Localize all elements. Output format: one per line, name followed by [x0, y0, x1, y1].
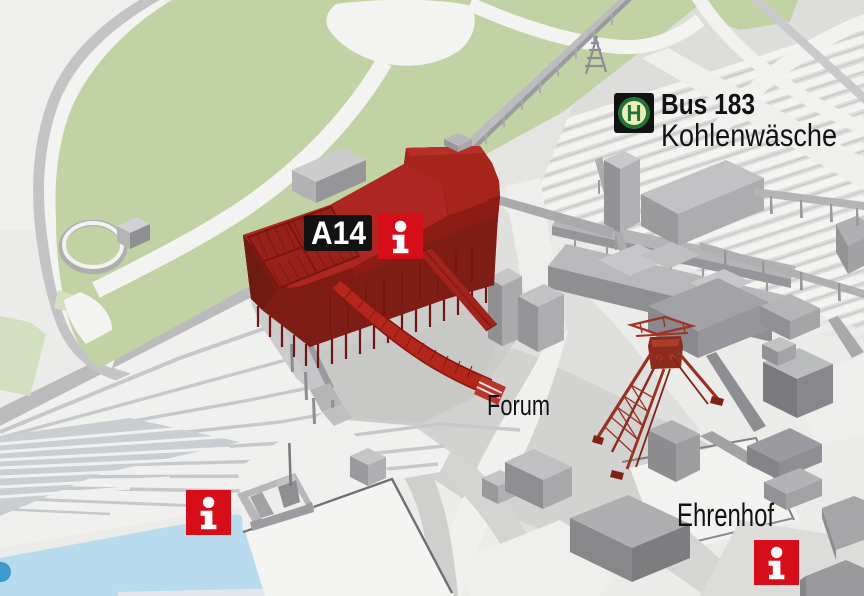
svg-text:H: H	[627, 100, 642, 126]
svg-text:Ehrenhof: Ehrenhof	[677, 497, 774, 533]
svg-text:Kohlenwäsche: Kohlenwäsche	[661, 117, 837, 153]
svg-text:Forum: Forum	[487, 390, 550, 422]
svg-text:A14: A14	[311, 215, 366, 251]
